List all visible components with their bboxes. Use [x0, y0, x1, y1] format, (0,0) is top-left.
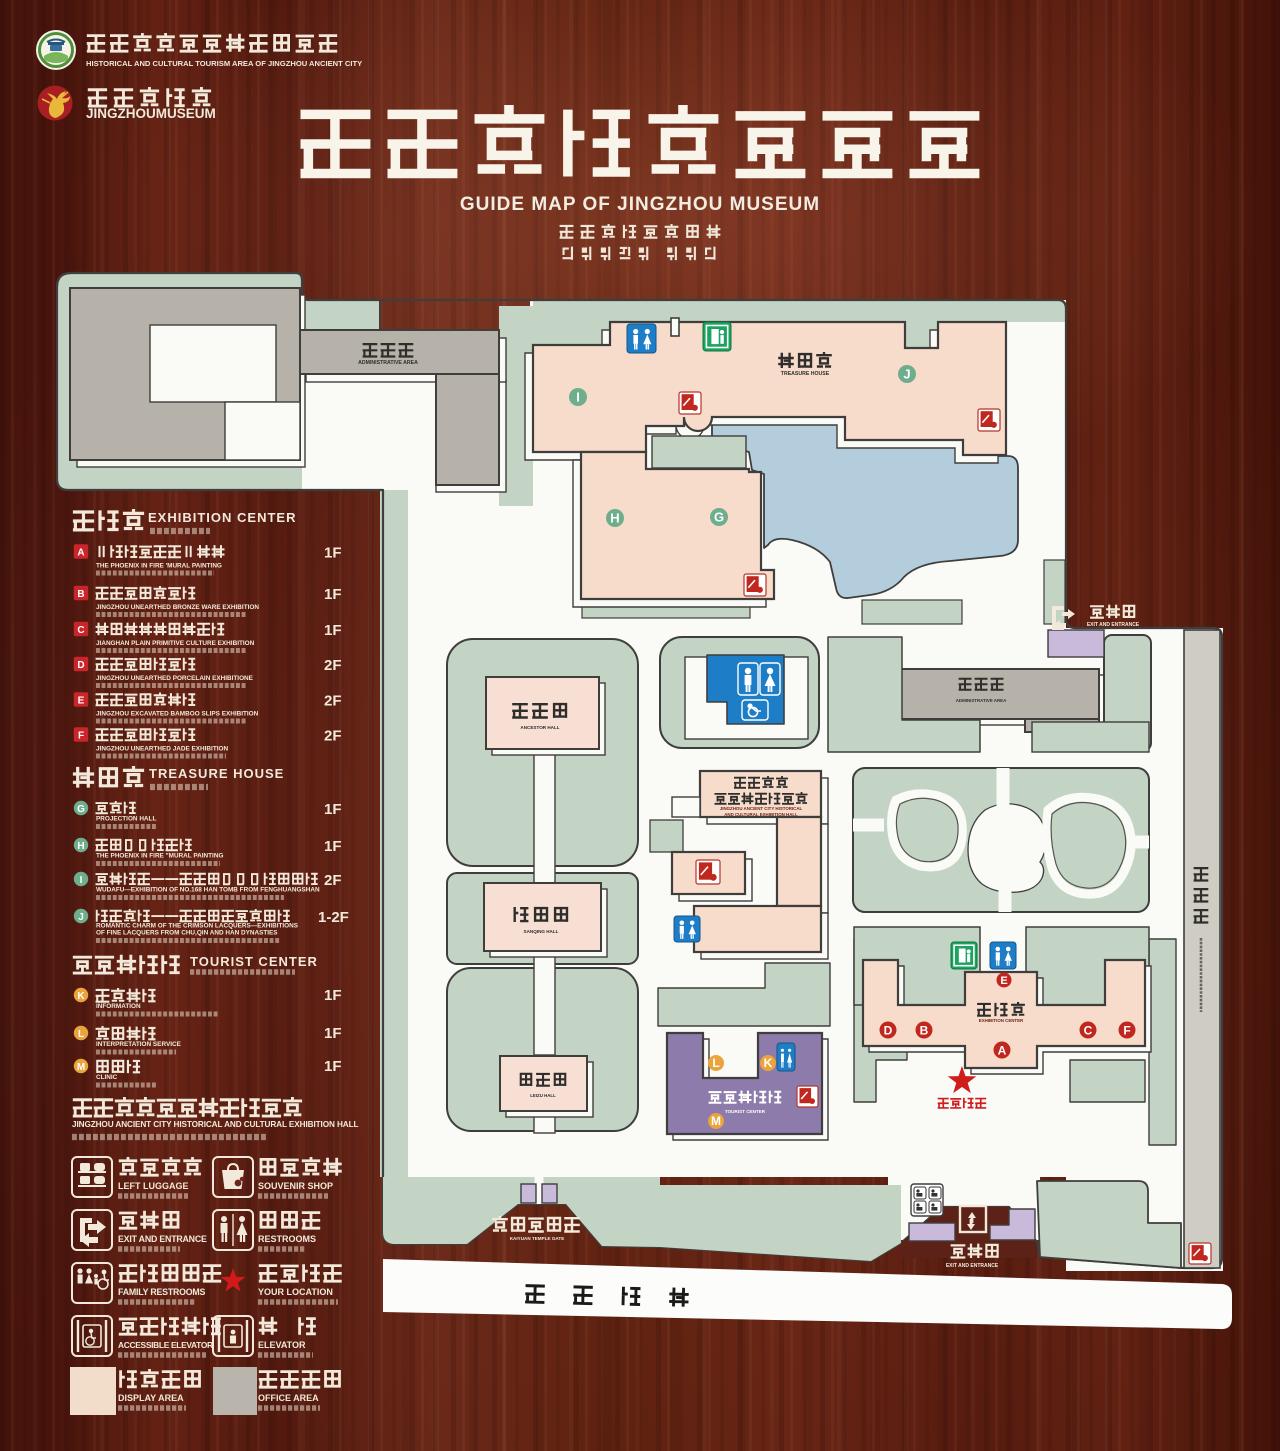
- svg-text:JINGZHOU EXCAVATED BAMBOO SLIP: JINGZHOU EXCAVATED BAMBOO SLIPS EXHIBITI…: [96, 711, 259, 718]
- svg-text:1F: 1F: [324, 987, 342, 1004]
- svg-text:B: B: [920, 1023, 929, 1037]
- svg-text:SOUVENIR SHOP: SOUVENIR SHOP: [258, 1181, 333, 1191]
- svg-text:INTERPRETATION SERVICE: INTERPRETATION SERVICE: [96, 1041, 182, 1048]
- svg-text:AND CULTURAL EXHIBITION HALL: AND CULTURAL EXHIBITION HALL: [724, 812, 798, 817]
- svg-text:INFORMATION: INFORMATION: [96, 1003, 141, 1010]
- svg-text:SANQING HALL: SANQING HALL: [524, 929, 559, 934]
- svg-text:1F: 1F: [324, 801, 342, 818]
- svg-text:L: L: [78, 1029, 84, 1040]
- svg-text:1F: 1F: [324, 622, 342, 639]
- svg-text:HISTORICAL AND CULTURAL TOURIS: HISTORICAL AND CULTURAL TOURISM AREA OF …: [86, 59, 362, 68]
- svg-text:1F: 1F: [324, 838, 342, 855]
- svg-text:TREASURE HOUSE: TREASURE HOUSE: [149, 766, 284, 781]
- svg-text:2F: 2F: [324, 693, 342, 710]
- svg-text:D: D: [77, 660, 84, 671]
- svg-text:1F: 1F: [324, 545, 342, 562]
- svg-text:D: D: [884, 1023, 893, 1037]
- svg-text:I: I: [80, 875, 83, 886]
- svg-text:F: F: [78, 730, 84, 741]
- svg-text:JINGZHOU ANCIENT CITY HISTORIC: JINGZHOU ANCIENT CITY HISTORICAL: [720, 806, 803, 811]
- svg-text:EXIT AND ENTRANCE: EXIT AND ENTRANCE: [1087, 622, 1140, 628]
- svg-text:JIANGHAN PLAIN PRIMITIVE CULTU: JIANGHAN PLAIN PRIMITIVE CULTURE EXHIBIT…: [96, 640, 255, 647]
- svg-text:L: L: [712, 1056, 719, 1070]
- svg-text:1-2F: 1-2F: [318, 909, 349, 926]
- svg-text:JINGZHOU UNEARTHED JADE EXHIBI: JINGZHOU UNEARTHED JADE EXHIBITION: [96, 746, 228, 753]
- svg-text:F: F: [1123, 1023, 1130, 1037]
- svg-text:TOURIST CENTER: TOURIST CENTER: [190, 954, 318, 969]
- svg-text:1F: 1F: [324, 586, 342, 603]
- svg-text:J: J: [78, 912, 84, 923]
- svg-text:RESTROOMS: RESTROOMS: [258, 1234, 316, 1244]
- svg-text:GUIDE MAP OF JINGZHOU MUSEUM: GUIDE MAP OF JINGZHOU MUSEUM: [460, 194, 820, 215]
- svg-text:2F: 2F: [324, 728, 342, 745]
- svg-text:A: A: [77, 547, 84, 558]
- svg-text:EXIT AND ENTRANCE: EXIT AND ENTRANCE: [946, 1263, 999, 1269]
- svg-text:OF FINE LACQUERS FROM CHU,QIN: OF FINE LACQUERS FROM CHU,QIN AND HAN DY…: [96, 930, 278, 937]
- svg-text:M: M: [711, 1114, 721, 1128]
- svg-text:C: C: [1084, 1023, 1093, 1037]
- svg-text:JINGZHOU UNEARTHED PORCELAIN E: JINGZHOU UNEARTHED PORCELAIN EXHIBITIONE: [96, 675, 254, 682]
- svg-text:ANCESTOR HALL: ANCESTOR HALL: [520, 725, 559, 730]
- svg-text:TREASURE HOUSE: TREASURE HOUSE: [781, 371, 830, 377]
- svg-text:E: E: [78, 695, 85, 706]
- svg-text:G: G: [714, 510, 724, 525]
- svg-text:OFFICE AREA: OFFICE AREA: [258, 1393, 319, 1403]
- svg-text:2F: 2F: [324, 872, 342, 889]
- svg-text:I: I: [576, 390, 580, 405]
- svg-text:A: A: [998, 1043, 1007, 1057]
- svg-text:H: H: [77, 841, 84, 852]
- svg-text:THE PHOENIX IN FIRE 'MURAL PAI: THE PHOENIX IN FIRE 'MURAL PAINTING: [96, 563, 222, 570]
- svg-text:TOURIST CENTER: TOURIST CENTER: [725, 1109, 766, 1114]
- svg-text:ACCESSIBLE ELEVATOR: ACCESSIBLE ELEVATOR: [118, 1340, 213, 1350]
- svg-text:E: E: [1000, 975, 1007, 987]
- svg-text:J: J: [903, 367, 910, 382]
- svg-text:ADMINISTRATIVE AREA: ADMINISTRATIVE AREA: [956, 698, 1007, 703]
- svg-text:EXIT AND ENTRANCE: EXIT AND ENTRANCE: [118, 1234, 207, 1244]
- svg-text:THE PHOENIX IN FIRE "MURAL PAI: THE PHOENIX IN FIRE "MURAL PAINTING: [96, 853, 223, 860]
- svg-text:M: M: [77, 1062, 85, 1073]
- svg-text:EXHIBITION CENTER: EXHIBITION CENTER: [979, 1018, 1024, 1023]
- svg-text:C: C: [77, 625, 84, 636]
- svg-text:DISPLAY AREA: DISPLAY AREA: [118, 1393, 184, 1403]
- svg-text:ROMANTIC CHARM OF THE CRIMSON: ROMANTIC CHARM OF THE CRIMSON LACQUERS—E…: [96, 923, 299, 930]
- svg-text:2F: 2F: [324, 657, 342, 674]
- svg-text:H: H: [610, 511, 619, 526]
- svg-text:JINGZHOU ANCIENT CITY HISTORIC: JINGZHOU ANCIENT CITY HISTORICAL AND CUL…: [72, 1120, 358, 1129]
- svg-text:YOUR LOCATION: YOUR LOCATION: [258, 1287, 333, 1297]
- svg-text:ADMINISTRATIVE AREA: ADMINISTRATIVE AREA: [358, 360, 418, 366]
- svg-text:1F: 1F: [324, 1058, 342, 1075]
- svg-text:JINGZHOU UNEARTHED BRONZE WARE: JINGZHOU UNEARTHED BRONZE WARE EXHIBITIO…: [96, 604, 259, 611]
- svg-text:WUDAFU—EXHIBITION OF NO.168 HA: WUDAFU—EXHIBITION OF NO.168 HAN TOMB FRO…: [96, 887, 320, 894]
- svg-text:B: B: [77, 589, 84, 600]
- svg-text:CLINIC: CLINIC: [96, 1074, 118, 1081]
- svg-text:EXHIBITION CENTER: EXHIBITION CENTER: [148, 510, 296, 525]
- svg-text:KAIYUAN TEMPLE GATE: KAIYUAN TEMPLE GATE: [510, 1236, 565, 1241]
- svg-text:K: K: [77, 991, 85, 1002]
- svg-text:K: K: [764, 1056, 773, 1070]
- svg-text:ELEVATOR: ELEVATOR: [258, 1340, 306, 1350]
- svg-text:JINGZHOUMUSEUM: JINGZHOUMUSEUM: [86, 106, 216, 121]
- svg-text:PROJECTION HALL: PROJECTION HALL: [96, 816, 156, 823]
- svg-text:FAMILY RESTROOMS: FAMILY RESTROOMS: [118, 1287, 206, 1297]
- svg-text:LEFT LUGGAGE: LEFT LUGGAGE: [118, 1181, 189, 1191]
- svg-text:LEIZU HALL: LEIZU HALL: [530, 1093, 556, 1098]
- svg-text:G: G: [77, 804, 85, 815]
- svg-text:1F: 1F: [324, 1025, 342, 1042]
